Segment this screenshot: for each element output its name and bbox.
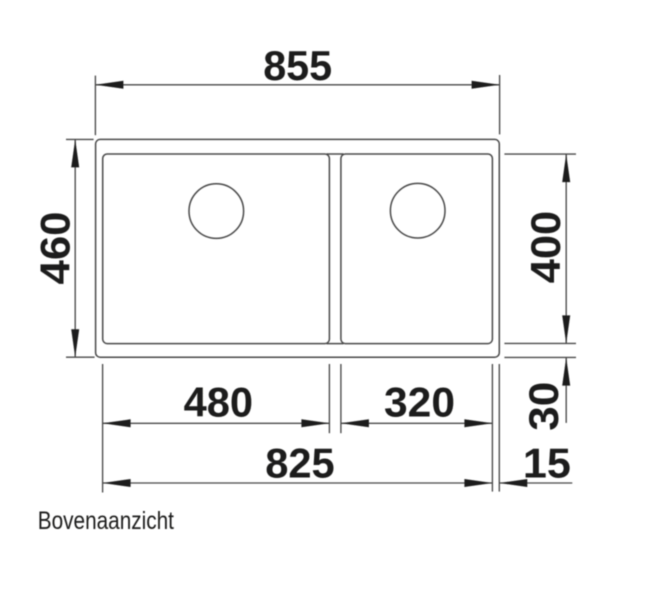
svg-text:400: 400 xyxy=(522,211,569,284)
svg-text:320: 320 xyxy=(384,379,455,426)
svg-text:480: 480 xyxy=(184,379,254,426)
svg-text:460: 460 xyxy=(32,212,79,285)
svg-text:15: 15 xyxy=(523,440,571,487)
svg-text:30: 30 xyxy=(520,382,567,431)
svg-text:825: 825 xyxy=(265,440,335,487)
svg-text:855: 855 xyxy=(263,42,332,89)
svg-text:Bovenaanzicht: Bovenaanzicht xyxy=(38,506,175,534)
